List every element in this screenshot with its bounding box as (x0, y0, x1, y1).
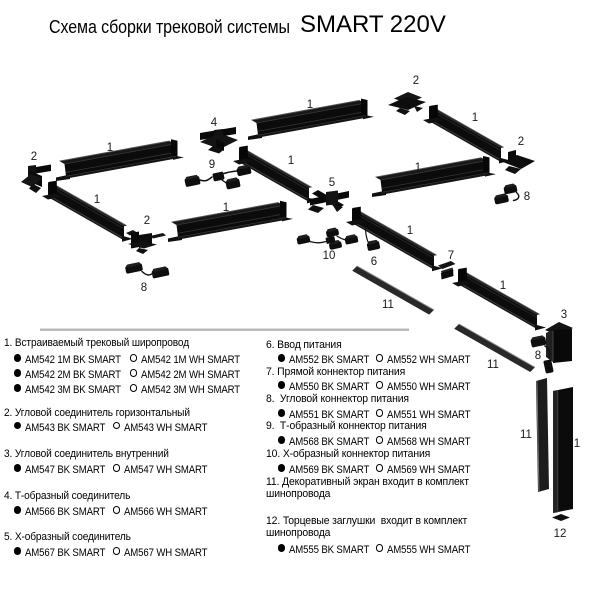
svg-text:1: 1 (223, 202, 229, 214)
svg-text:1: 1 (472, 112, 478, 124)
svg-text:8: 8 (141, 282, 147, 294)
svg-text:1: 1 (307, 99, 313, 111)
svg-text:11: 11 (382, 299, 394, 311)
svg-text:1: 1 (415, 162, 421, 174)
svg-text:2: 2 (31, 151, 37, 163)
svg-text:1: 1 (94, 194, 100, 206)
svg-text:7: 7 (448, 250, 454, 262)
svg-text:8: 8 (524, 191, 530, 203)
svg-text:4: 4 (211, 117, 218, 129)
svg-text:9: 9 (209, 159, 215, 171)
svg-text:11: 11 (487, 359, 499, 371)
svg-text:2: 2 (518, 136, 524, 148)
svg-text:11: 11 (520, 429, 532, 441)
svg-text:1: 1 (407, 225, 413, 237)
svg-text:10: 10 (323, 250, 336, 262)
svg-text:2: 2 (144, 215, 150, 227)
svg-text:1: 1 (107, 142, 113, 154)
svg-text:3: 3 (561, 309, 567, 321)
svg-text:12: 12 (554, 528, 567, 540)
svg-text:1: 1 (574, 438, 580, 450)
svg-text:6: 6 (371, 256, 377, 268)
svg-text:1: 1 (500, 280, 506, 292)
svg-text:8: 8 (535, 350, 541, 362)
svg-text:2: 2 (413, 75, 419, 87)
svg-text:1: 1 (288, 155, 294, 167)
svg-text:5: 5 (329, 177, 335, 189)
